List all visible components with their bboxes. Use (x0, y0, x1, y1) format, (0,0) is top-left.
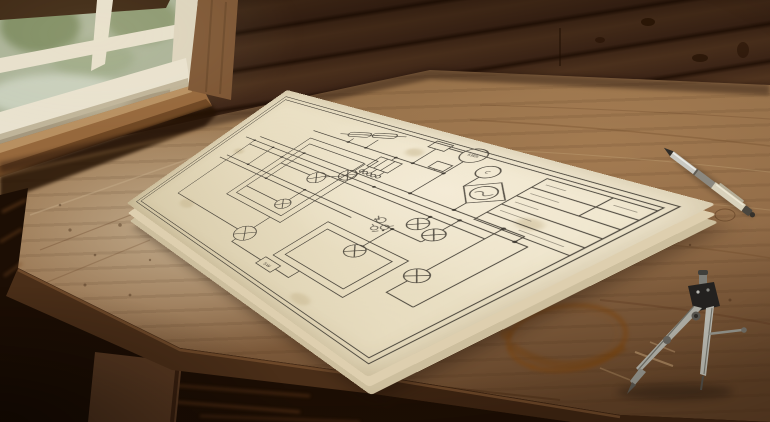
generator-label: C (482, 169, 494, 175)
fuse-symbols (335, 122, 407, 152)
scribble-annotation (360, 216, 397, 235)
terminal-block-symbol (357, 154, 406, 179)
motor-symbol (435, 176, 524, 217)
distribution-box-outline (273, 222, 408, 298)
title-block (474, 179, 658, 256)
kwh-meter-label: kWh (465, 153, 482, 160)
title-block-text-scribbles (486, 185, 637, 248)
generator-symbol (455, 164, 506, 189)
photo-scene: kWh C SW (0, 0, 770, 422)
room-outline (227, 138, 378, 222)
